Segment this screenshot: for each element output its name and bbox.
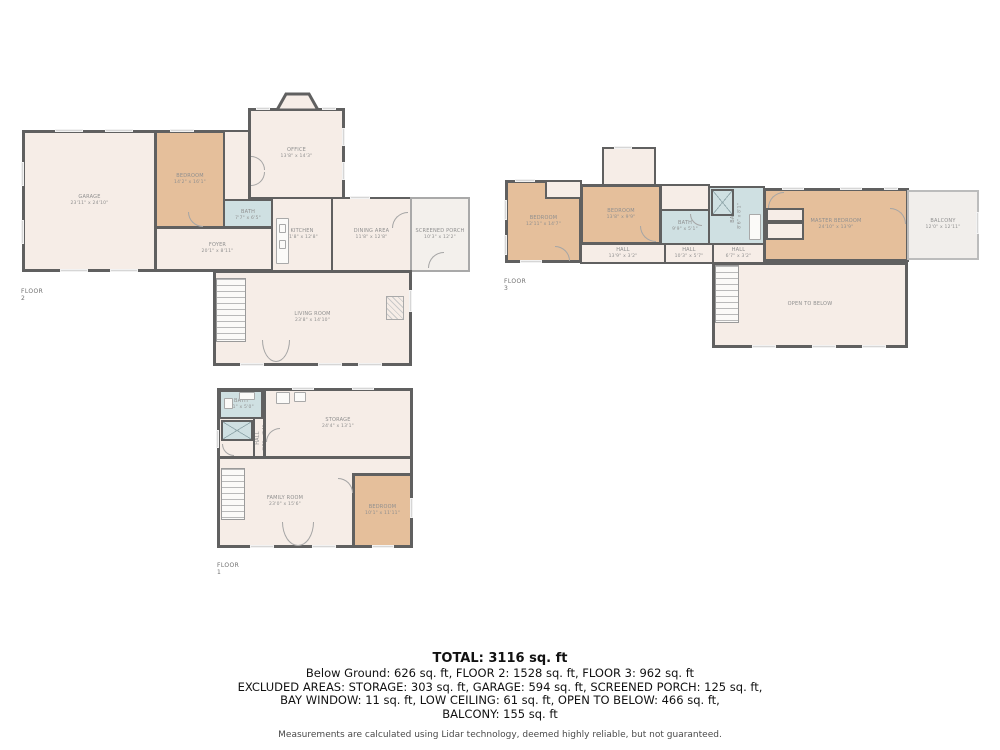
room-dims: 12'0" x 12'11": [926, 225, 961, 232]
window: [409, 290, 412, 312]
room-name: BEDROOM: [526, 215, 561, 222]
window: [342, 128, 345, 146]
window: [312, 545, 336, 548]
area-summary: TOTAL: 3116 sq. ft Below Ground: 626 sq.…: [0, 651, 1000, 740]
window: [110, 269, 138, 272]
bay-window: [274, 91, 320, 111]
window: [862, 345, 886, 348]
window: [614, 146, 632, 149]
utility-icon: [276, 392, 290, 404]
shower-icon: [221, 420, 253, 441]
floor2-room-office: OFFICE13'8" x 14'3": [248, 108, 345, 200]
excluded-areas-line2: BAY WINDOW: 11 sq. ft, LOW CEILING: 61 s…: [0, 694, 1000, 708]
room-dims: 8'6" x 8'1": [737, 203, 744, 229]
toilet-icon: [224, 398, 233, 409]
window: [55, 129, 83, 132]
window: [520, 260, 542, 263]
room-name: HALL: [726, 247, 752, 254]
floor3-room-hall3: HALL6'7" x 3'2": [712, 243, 765, 264]
room-dims: 6'7" x 3'2": [726, 254, 752, 261]
fireplace-icon: [386, 296, 404, 320]
room-dims: 20'1" x 8'11": [202, 249, 234, 256]
window: [884, 187, 898, 190]
window: [216, 430, 219, 448]
room-dims: 13'8" x 14'3": [281, 154, 313, 161]
room-dims: 11'8" x 12'8": [286, 235, 318, 242]
staircase: [216, 278, 246, 342]
floor3-room-bath1: BATH9'9" x 5'1": [660, 209, 710, 245]
floor3-closet-hall: [660, 184, 710, 211]
floor3-label: FLOOR 3: [504, 278, 526, 292]
floor3-room-balcony: BALCONY12'0" x 12'11": [907, 190, 979, 260]
room-dims: 12'11" x 14'7": [526, 222, 561, 229]
window: [352, 387, 374, 390]
excluded-areas-line3: BALCONY: 155 sq. ft: [0, 708, 1000, 722]
floor3-room-hall2: HALL10'3" x 5'7": [664, 243, 714, 264]
window: [840, 187, 862, 190]
floor3-open-to-below: OPEN TO BELOW: [712, 262, 908, 348]
window: [410, 498, 413, 518]
floor3-room-hall1: HALL13'9" x 3'2": [580, 243, 666, 264]
staircase: [715, 265, 739, 323]
window: [21, 220, 24, 244]
window: [292, 387, 314, 390]
excluded-areas-line1: EXCLUDED AREAS: STORAGE: 303 sq. ft, GAR…: [0, 681, 1000, 695]
window: [256, 107, 270, 110]
room-dims: 24'10" x 13'9": [810, 225, 861, 232]
floor2-label: FLOOR 2: [21, 288, 43, 302]
utility-icon: [294, 392, 306, 402]
window: [322, 107, 336, 110]
floorplan-canvas: GARAGE23'11" x 24'10" BEDROOM14'2" x 16'…: [0, 0, 1000, 750]
window: [782, 187, 804, 190]
window: [752, 345, 776, 348]
window: [21, 162, 24, 186]
window: [318, 363, 342, 366]
room-dims: 23'11" x 24'10": [70, 201, 108, 208]
bathtub-icon: [749, 214, 761, 240]
room-name: KITCHEN: [286, 228, 318, 235]
measure-disclaimer: Measurements are calculated using Lidar …: [0, 730, 1000, 740]
master-closet-1: [766, 208, 804, 222]
bath-sink: [239, 392, 255, 400]
window: [504, 235, 507, 255]
room-dims: 10'3" x 12'2": [415, 235, 464, 242]
window: [105, 129, 133, 132]
kitchen-stove: [279, 240, 286, 249]
total-area: TOTAL: 3116 sq. ft: [0, 651, 1000, 666]
room-name: BEDROOM: [365, 504, 400, 511]
floor2-upper-hall: [223, 130, 251, 202]
room-dims: 24'4" x 13'1": [322, 424, 354, 431]
window: [250, 545, 274, 548]
window: [240, 363, 264, 366]
staircase: [221, 468, 245, 520]
room-name: HALL: [675, 247, 704, 254]
room-name: DINING AREA: [354, 228, 389, 235]
room-name: BATH: [235, 209, 261, 216]
room-dims: 9'9" x 5'1": [672, 227, 698, 234]
floor1-room-bedroom: BEDROOM10'1" x 11'11": [352, 473, 413, 548]
room-dims: 13'9" x 3'2": [609, 254, 638, 261]
room-dims: 14'2" x 16'1": [174, 180, 206, 187]
kitchen-sink: [279, 224, 286, 233]
floor2-room-garage: GARAGE23'11" x 24'10": [22, 130, 157, 272]
room-dims: 10'1" x 11'11": [365, 511, 400, 518]
room-name: STORAGE: [322, 417, 354, 424]
room-dims: 23'0" x 15'6": [267, 502, 303, 509]
master-closet-2: [766, 222, 804, 240]
room-dims: 13'8" x 9'9": [607, 215, 636, 222]
room-name: BEDROOM: [607, 208, 636, 215]
room-name: HALL: [609, 247, 638, 254]
room-dims: 11'8" x 12'8": [354, 235, 389, 242]
floor3-closet: [545, 180, 582, 199]
floor2-room-foyer: FOYER20'1" x 8'11": [154, 226, 281, 272]
room-dims: 7'7" x 6'5": [235, 216, 261, 223]
window: [358, 363, 382, 366]
room-name: SCREENED PORCH: [415, 228, 464, 235]
window: [342, 162, 345, 180]
window: [350, 196, 370, 199]
room-name: OPEN TO BELOW: [788, 301, 833, 308]
floor3-low-ceiling: [602, 147, 656, 186]
window: [60, 269, 88, 272]
window: [372, 545, 394, 548]
room-name: BEDROOM: [174, 173, 206, 180]
shower-icon: [711, 189, 734, 216]
floor2-room-dining: DINING AREA11'8" x 12'8": [331, 197, 412, 272]
window: [515, 179, 535, 182]
room-dims: 23'8" x 14'10": [294, 318, 330, 325]
floor1-label: FLOOR 1: [217, 562, 239, 576]
window: [976, 212, 979, 234]
floor-areas-line: Below Ground: 626 sq. ft, FLOOR 2: 1528 …: [0, 667, 1000, 681]
window: [170, 129, 194, 132]
room-dims: 10'3" x 5'7": [675, 254, 704, 261]
window: [504, 200, 507, 220]
window: [812, 345, 836, 348]
